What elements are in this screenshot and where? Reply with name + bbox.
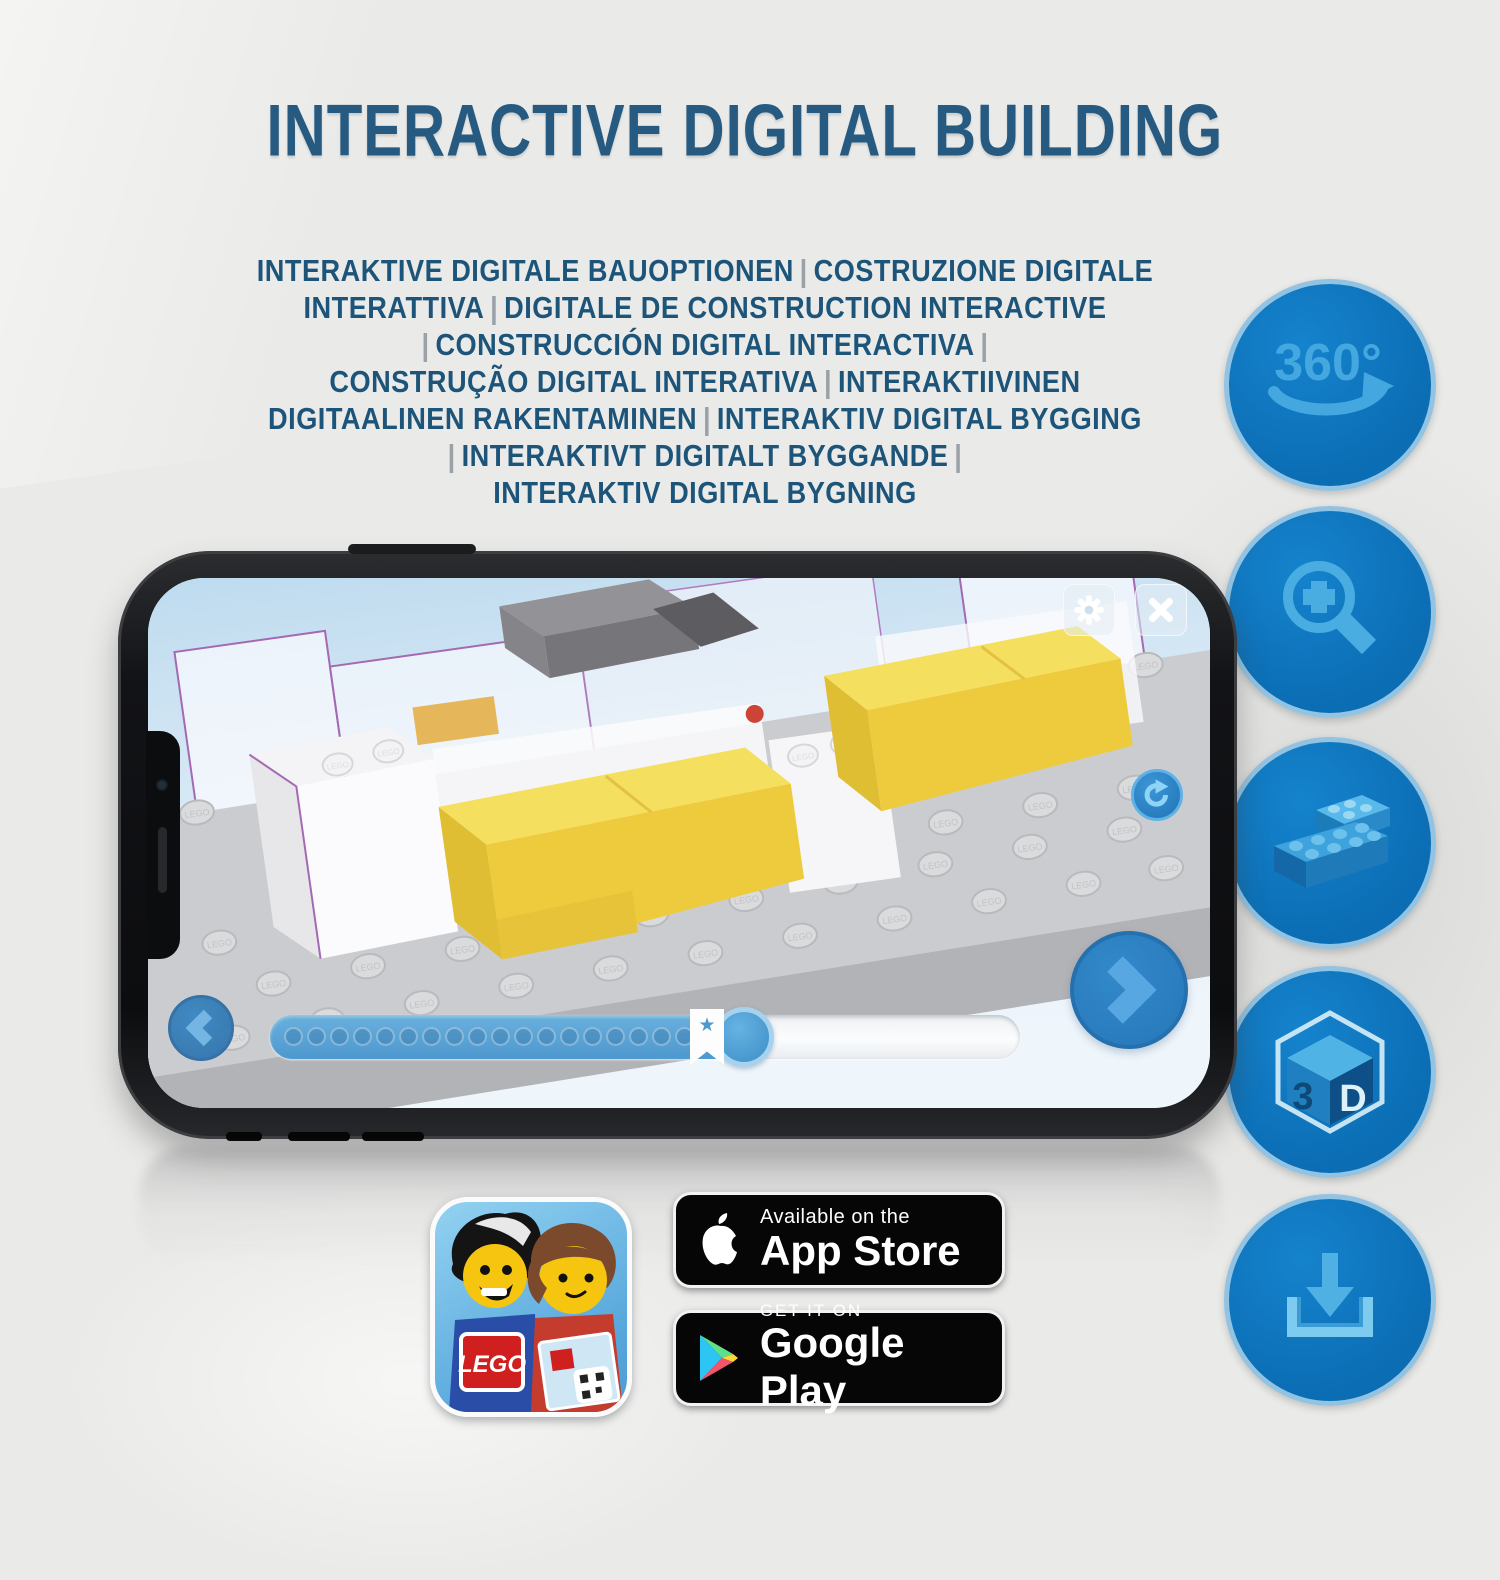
next-step-button[interactable] xyxy=(1070,931,1188,1049)
settings-button[interactable] xyxy=(1063,584,1115,636)
subtitle-line: CONSTRUÇÃO DIGITAL INTERATIVA|INTERAKTII… xyxy=(99,361,1312,402)
rotate-icon xyxy=(1140,778,1174,812)
progress-dot xyxy=(629,1027,648,1046)
separator: | xyxy=(416,327,436,361)
subtitle-line: DIGITAALINEN RAKENTAMINEN|INTERAKTIV DIG… xyxy=(99,398,1312,439)
previous-step-button[interactable] xyxy=(168,995,234,1061)
multilingual-subtitle: INTERAKTIVE DIGITALE BAUOPTIONEN|COSTRUZ… xyxy=(80,252,1330,511)
subtitle-line: |INTERAKTIVT DIGITALT BYGGANDE| xyxy=(99,435,1312,476)
speaker-slot xyxy=(158,827,167,893)
3d-view-icon: 3 D xyxy=(1265,1007,1395,1137)
close-icon xyxy=(1143,592,1179,628)
separator: | xyxy=(818,364,838,398)
progress-dot xyxy=(491,1027,510,1046)
phone-volume-slot xyxy=(226,1132,262,1141)
svg-text:3: 3 xyxy=(1292,1076,1313,1118)
progress-dot xyxy=(468,1027,487,1046)
progress-dot xyxy=(606,1027,625,1046)
chevron-left-icon xyxy=(184,1008,218,1048)
download-icon xyxy=(1265,1235,1395,1365)
apple-icon xyxy=(676,1212,760,1268)
separator: | xyxy=(697,401,717,435)
zoom-in-icon xyxy=(1265,547,1395,677)
progress-dot xyxy=(399,1027,418,1046)
subtitle-line: INTERATTIVA|DIGITALE DE CONSTRUCTION INT… xyxy=(99,287,1312,328)
brick-icon xyxy=(1260,778,1400,908)
progress-dot xyxy=(307,1027,326,1046)
rotate-view-button[interactable] xyxy=(1131,769,1183,821)
progress-dot xyxy=(445,1027,464,1046)
progress-dot xyxy=(514,1027,533,1046)
camera-icon xyxy=(156,779,168,791)
phone-mockup: LEGO LEGO xyxy=(118,551,1237,1139)
feature-3d-icon: 3 D xyxy=(1224,966,1436,1178)
separator: | xyxy=(442,438,462,472)
progress-dot xyxy=(537,1027,556,1046)
feature-360-rotation-icon: 360° xyxy=(1224,279,1436,491)
phone-notch xyxy=(146,731,180,959)
google-play-tagline: GET IT ON xyxy=(760,1301,1002,1321)
lego-minifigures-art: LEGO xyxy=(435,1202,627,1412)
progress-dot xyxy=(330,1027,349,1046)
feature-download-icon xyxy=(1224,1194,1436,1406)
chevron-right-icon xyxy=(1097,954,1161,1026)
separator: | xyxy=(794,253,814,287)
google-play-label: Google Play xyxy=(760,1319,1002,1415)
progress-fill xyxy=(270,1015,746,1059)
progress-dot xyxy=(284,1027,303,1046)
build-progress-slider[interactable]: ★ xyxy=(270,1015,1020,1059)
subtitle-line: INTERAKTIVE DIGITALE BAUOPTIONEN|COSTRUZ… xyxy=(99,250,1312,291)
google-play-icon xyxy=(676,1330,760,1386)
progress-step-dots xyxy=(284,1027,717,1047)
separator: | xyxy=(975,327,995,361)
phone-volume-slot xyxy=(288,1132,350,1141)
feature-brick-icon xyxy=(1224,737,1436,949)
phone-screen: LEGO LEGO xyxy=(148,578,1210,1108)
close-button[interactable] xyxy=(1135,584,1187,636)
separator: | xyxy=(948,438,968,472)
progress-dot xyxy=(560,1027,579,1046)
progress-dot xyxy=(652,1027,671,1046)
phone-mute-slot xyxy=(362,1132,424,1141)
page-title: INTERACTIVE DIGITAL BUILDING xyxy=(0,96,1490,167)
svg-text:360°: 360° xyxy=(1274,334,1382,392)
rotate-360-icon: 360° xyxy=(1260,320,1400,450)
separator: | xyxy=(484,290,504,324)
feature-zoom-icon xyxy=(1224,506,1436,718)
app-store-badge[interactable]: Available on the App Store xyxy=(673,1192,1005,1288)
phone-power-button xyxy=(348,544,476,554)
app-store-label: App Store xyxy=(760,1227,961,1275)
lego-app-promo-poster: { "title": "INTERACTIVE DIGITAL BUILDING… xyxy=(0,0,1500,1500)
progress-dot xyxy=(353,1027,372,1046)
progress-dot xyxy=(422,1027,441,1046)
progress-dot xyxy=(376,1027,395,1046)
subtitle-line: |CONSTRUCCIÓN DIGITAL INTERACTIVA| xyxy=(99,324,1312,365)
google-play-badge[interactable]: GET IT ON Google Play xyxy=(673,1310,1005,1406)
gear-icon xyxy=(1070,591,1108,629)
lego-app-icon[interactable]: LEGO xyxy=(430,1197,632,1417)
svg-text:D: D xyxy=(1339,1078,1366,1120)
svg-text:LEGO: LEGO xyxy=(458,1351,526,1378)
progress-dot xyxy=(583,1027,602,1046)
subtitle-line: INTERAKTIV DIGITAL BYGNING xyxy=(99,472,1312,513)
app-store-tagline: Available on the xyxy=(760,1206,961,1229)
